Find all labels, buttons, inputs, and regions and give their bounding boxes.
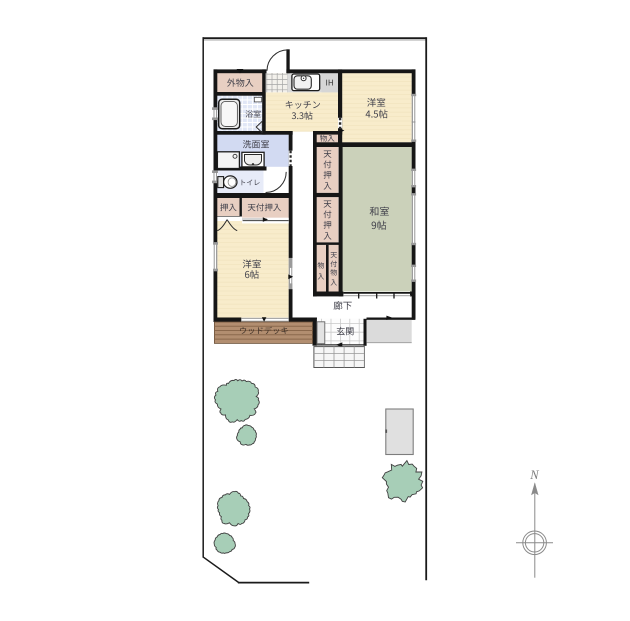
svg-text:天付押入: 天付押入 <box>323 198 332 242</box>
svg-text:洗面室: 洗面室 <box>242 138 269 151</box>
svg-text:6帖: 6帖 <box>245 267 260 281</box>
svg-text:IH: IH <box>326 78 334 89</box>
svg-text:3.3帖: 3.3帖 <box>292 109 314 122</box>
svg-text:玄関: 玄関 <box>336 325 354 338</box>
svg-text:物入: 物入 <box>317 261 324 282</box>
svg-text:N: N <box>529 468 539 482</box>
svg-text:天付物入: 天付物入 <box>330 250 337 288</box>
svg-text:4.5帖: 4.5帖 <box>365 107 388 121</box>
svg-text:ウッドデッキ: ウッドデッキ <box>239 326 289 337</box>
svg-text:廊下: 廊下 <box>333 298 352 312</box>
svg-text:物入: 物入 <box>320 133 335 144</box>
svg-text:9帖: 9帖 <box>371 217 387 232</box>
svg-text:浴室: 浴室 <box>245 109 261 120</box>
svg-text:天付押入: 天付押入 <box>323 148 332 192</box>
svg-text:外物入: 外物入 <box>227 76 254 89</box>
svg-text:和室: 和室 <box>369 203 389 218</box>
svg-text:押入: 押入 <box>220 201 238 213</box>
svg-text:トイレ: トイレ <box>239 178 260 188</box>
svg-text:天付押入: 天付押入 <box>247 202 282 214</box>
